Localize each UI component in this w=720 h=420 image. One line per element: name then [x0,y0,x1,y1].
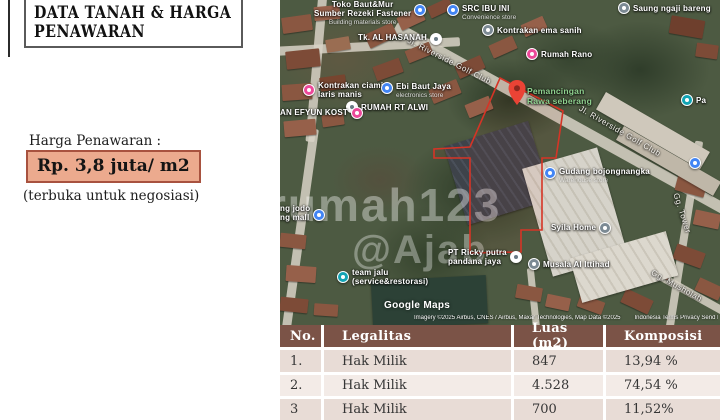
map-poi-partial-right[interactable]: Pa [681,94,706,106]
place-icon [482,24,494,36]
table-cell: 2. [280,375,321,396]
map-poi-src-ibu-ini[interactable]: SRC IBU INI Convenience store [447,4,516,22]
mosque-icon [528,258,540,270]
price-highlight-box: Rp. 3,8 juta/ m2 [26,150,201,183]
table-cell: 700 [514,399,603,420]
place-icon [681,94,693,106]
electronics-store-icon [381,82,393,94]
map-poi-syila-home[interactable]: Syila Home [551,223,611,234]
table-cell: Hak Milik [324,350,511,372]
col-header-luas: Luas (m2) [514,325,603,347]
table-cell: 4.528 [514,375,603,396]
table-cell: 3 [280,399,321,420]
warehouse-icon [544,167,556,179]
map-poi-toko-baut-mur[interactable]: Toko Baut&Mur Sumber Rezeki Fastener Bui… [314,0,426,27]
google-maps-logo: Google Maps [384,300,450,311]
page-title: DATA TANAH & HARGA PENAWARAN [34,4,231,42]
map-poi-saung-ngaji-bareng[interactable]: Saung ngaji bareng [618,2,711,14]
info-panel: DATA TANAH & HARGA PENAWARAN Harga Penaw… [0,0,280,420]
shopping-icon [313,209,325,221]
price-label: Harga Penawaran : [29,133,161,149]
service-icon [337,271,349,283]
map-poi-tk-al-hasanah[interactable]: Tk. AL HASANAH [358,33,442,45]
lodging-icon [351,107,363,119]
col-header-komposisi: Komposisi [606,325,720,347]
left-border-line [8,0,10,57]
convenience-store-icon [447,4,459,16]
map-poi-efyun-kost[interactable]: AN EFYUN KOST [280,108,363,119]
map-poi-gudang-bojongnangka[interactable]: Gudang bojongnangka Warehouse store [544,167,650,185]
lodging-icon [526,48,538,60]
map-poi-kontrakan-ciamis[interactable]: Kontrakan ciamis laris manis [303,81,388,99]
table-cell: Hak Milik [324,375,511,396]
home-icon [599,222,611,234]
table-cell: 13,94 % [606,350,720,372]
shop-icon [430,33,442,45]
col-header-legalitas: Legalitas [324,325,511,347]
negotiation-note: (terbuka untuk negosiasi) [23,188,199,204]
map-poi-partial-left[interactable]: ng jodo ng mall [280,204,325,222]
map-poi-rumah-rano[interactable]: Rumah Rano [526,48,592,60]
place-icon [618,2,630,14]
store-icon [689,157,701,169]
price-value: Rp. 3,8 juta/ m2 [37,156,190,176]
map-poi-kontrakan-ema-sanih[interactable]: Kontrakan ema sanih [482,24,582,36]
company-icon [510,251,522,263]
map-poi-team-jalu[interactable]: team jalu (service&restorasi) [337,268,428,286]
legal-data-table: No. Legalitas Luas (m2) Komposisi 1. Hak… [280,325,720,420]
table-cell: 1. [280,350,321,372]
map-pin-icon[interactable] [508,80,526,106]
map-poi-ebi-baut-jaya[interactable]: Ebi Baut Jaya electronics store [381,82,451,100]
table-cell: Hak Milik [324,399,511,420]
title-box: DATA TANAH & HARGA PENAWARAN [24,0,243,48]
table-cell: 11,52% [606,399,720,420]
lodging-icon [303,84,315,96]
map-poi-edge-icon[interactable] [689,157,701,169]
table-cell: 74,54 % [606,375,720,396]
table-cell: 847 [514,350,603,372]
map-poi-pemancingan[interactable]: Pemancingan Rawa seberang [527,86,592,106]
map-poi-pt-ricky-putra[interactable]: PT Ricky putra pandana jaya [448,248,522,266]
map-satellite-view[interactable]: rumah123 @Ajab Jl. Riverside Golf Club J… [280,0,720,325]
attribution-links[interactable]: Indonesia Terms Privacy Send Product Fee… [635,315,718,321]
store-icon [414,4,426,16]
col-header-no: No. [280,325,321,347]
map-poi-musala-al-ittihad[interactable]: Musala Al Ittihad [528,258,610,270]
